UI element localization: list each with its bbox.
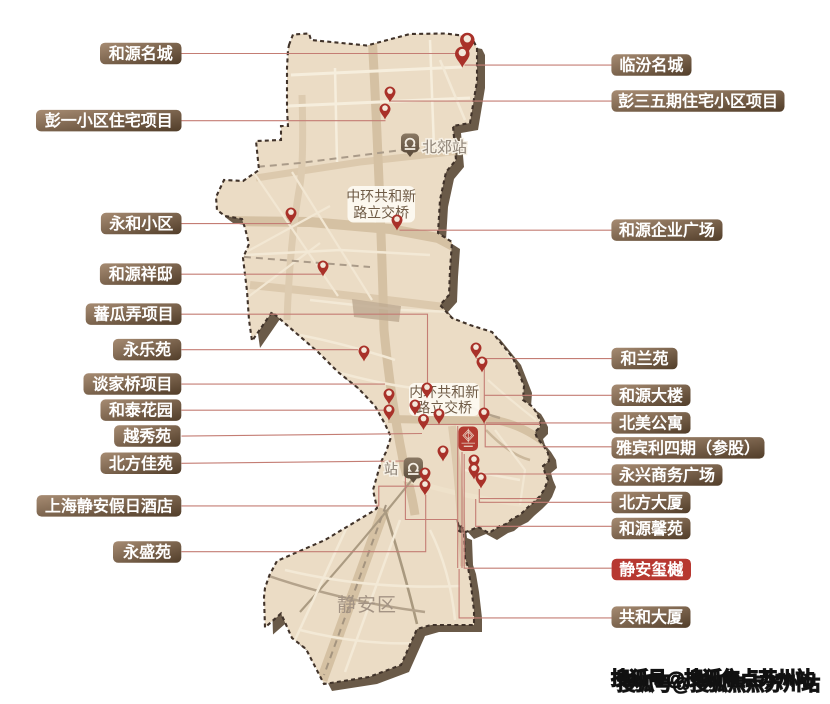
- svg-text:和源祥邸: 和源祥邸: [109, 265, 173, 284]
- svg-text:北方大厦: 北方大厦: [619, 493, 684, 512]
- svg-text:雅宾利四期（参股）: 雅宾利四期（参股）: [615, 438, 760, 457]
- svg-text:和兰苑: 和兰苑: [620, 349, 668, 368]
- svg-text:和源名城: 和源名城: [109, 44, 173, 63]
- svg-text:彭三五期住宅小区项目: 彭三五期住宅小区项目: [618, 92, 778, 111]
- svg-text:越秀苑: 越秀苑: [122, 427, 171, 446]
- svg-text:临汾名城: 临汾名城: [619, 56, 683, 75]
- svg-text:上海静安假日酒店: 上海静安假日酒店: [45, 496, 173, 515]
- svg-text:和源馨苑: 和源馨苑: [619, 519, 683, 538]
- svg-text:永和小区: 永和小区: [108, 214, 173, 233]
- svg-text:和源大楼: 和源大楼: [619, 386, 683, 405]
- svg-text:永盛苑: 永盛苑: [122, 543, 171, 562]
- svg-text:搜狐号@搜狐焦点苏州站: 搜狐号@搜狐焦点苏州站: [617, 674, 821, 695]
- svg-text:静安玺樾: 静安玺樾: [619, 560, 684, 579]
- svg-text:永乐苑: 永乐苑: [122, 340, 171, 359]
- svg-text:北美公寓: 北美公寓: [619, 413, 683, 432]
- svg-text:站: 站: [384, 461, 398, 477]
- svg-text:和源企业广场: 和源企业广场: [619, 221, 715, 240]
- svg-text:谈家桥项目: 谈家桥项目: [92, 375, 172, 394]
- svg-text:永兴商务广场: 永兴商务广场: [618, 466, 715, 485]
- svg-text:北郊站: 北郊站: [422, 139, 467, 156]
- svg-text:北方佳苑: 北方佳苑: [109, 454, 173, 473]
- svg-text:和泰花园: 和泰花园: [109, 401, 173, 420]
- svg-text:彭一小区住宅项目: 彭一小区住宅项目: [45, 111, 173, 130]
- svg-text:静安区: 静安区: [337, 594, 397, 616]
- svg-text:内环共和新: 内环共和新: [409, 384, 479, 400]
- svg-text:中环共和新: 中环共和新: [346, 188, 416, 204]
- svg-text:蕃瓜弄项目: 蕃瓜弄项目: [93, 305, 174, 324]
- svg-text:共和大厦: 共和大厦: [619, 608, 684, 627]
